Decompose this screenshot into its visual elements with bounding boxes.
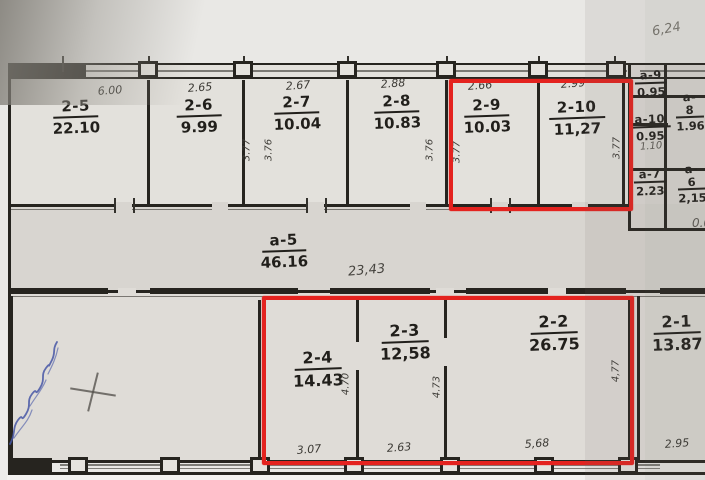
room-label-a-6: a-6 2,15 [677, 163, 705, 206]
wall-solid-segment [150, 288, 298, 294]
dim-label: 6.00 [97, 83, 122, 98]
door-opening [548, 288, 566, 296]
room-id: 2-8 [374, 92, 419, 113]
window-pillar [337, 61, 357, 78]
window-pillar [138, 61, 158, 78]
room-area: 46.16 [260, 251, 308, 271]
room-id: 2-7 [274, 93, 319, 114]
top-margin [0, 0, 705, 63]
dim-label: 2.95 [664, 436, 689, 451]
room-id: a-10 [629, 112, 670, 128]
wall-solid-segment [8, 288, 108, 294]
bottom-margin [0, 475, 705, 480]
window-pillar [68, 457, 88, 474]
room-id: a-7 [633, 167, 666, 183]
room-id: a-6 [677, 163, 705, 191]
window-pillar [606, 61, 626, 78]
highlight-box-upper [449, 79, 633, 211]
room-area: 0.95 [635, 83, 668, 99]
room-label-2-1: 2-1 13.87 [651, 312, 703, 354]
wall [258, 300, 261, 460]
dim-label-vertical: 3.76 [425, 139, 436, 161]
room-id: 2-6 [176, 96, 221, 117]
room-area: 13.87 [652, 333, 703, 354]
wall-solid-segment [660, 288, 705, 294]
room-area: 2.23 [634, 182, 667, 198]
window-pillar [436, 61, 456, 78]
wall-solid-segment [8, 63, 86, 79]
room-label-a-8: a-8 1.96 [675, 91, 705, 134]
wall [445, 80, 448, 204]
room-id: a-8 [675, 91, 704, 119]
room-label-2-8: 2-8 10.83 [373, 92, 422, 132]
room-area: 2,15 [678, 190, 705, 206]
door-opening [436, 288, 454, 296]
door-opening [116, 202, 132, 211]
window-pillar [160, 457, 180, 474]
dim-label: 2.88 [380, 76, 405, 91]
room-area: 9.99 [177, 116, 222, 136]
wall [346, 80, 349, 204]
dim-label: 2.65 [187, 80, 212, 95]
door-tick [133, 198, 135, 213]
wall [147, 80, 150, 204]
room-label-a-7: a-7 2.23 [633, 167, 666, 197]
room-label-a-10: a-10 0.95 [629, 112, 671, 143]
floor-plan-scan: 6.00 2.65 2.67 2.88 2.66 2.99 2-5 22.10 … [0, 0, 705, 480]
room-area: 10.83 [373, 112, 421, 132]
door-tick [325, 198, 327, 213]
dim-tick [62, 56, 64, 72]
wall [637, 296, 640, 462]
room-id: a-9 [634, 68, 667, 84]
door-opening [118, 288, 136, 296]
room-label-2-5: 2-5 22.10 [52, 97, 101, 137]
window-pillar [528, 61, 548, 78]
room-label-a-9: a-9 0.95 [634, 68, 667, 98]
wall-solid-segment [466, 288, 626, 294]
door-opening [410, 202, 426, 211]
room-label-2-6: 2-6 9.99 [176, 96, 222, 136]
dim-label-vertical: 3.76 [264, 139, 275, 161]
room-id: 2-5 [53, 97, 98, 118]
door-opening [308, 202, 324, 211]
partial-number: 0.0 [692, 216, 705, 230]
window-pillar [233, 61, 253, 78]
door-opening [212, 202, 228, 211]
room-area: 10.04 [273, 113, 321, 133]
dim-label-vertical: 3.77 [242, 139, 253, 161]
handwritten-dim: 1.10 [640, 140, 663, 153]
wall-solid-segment [330, 288, 430, 294]
room-id: 2-1 [653, 312, 700, 334]
room-area: 22.10 [52, 117, 100, 137]
room-label-a-5: a-5 46.16 [260, 231, 309, 271]
room-label-2-7: 2-7 10.04 [273, 93, 322, 133]
room-id: a-5 [261, 231, 306, 252]
highlight-box-lower [262, 296, 634, 465]
wall-solid-segment [8, 458, 52, 474]
dim-label: 2.67 [285, 78, 310, 93]
room-area: 1.96 [676, 118, 705, 134]
handwritten-signature [2, 330, 64, 452]
